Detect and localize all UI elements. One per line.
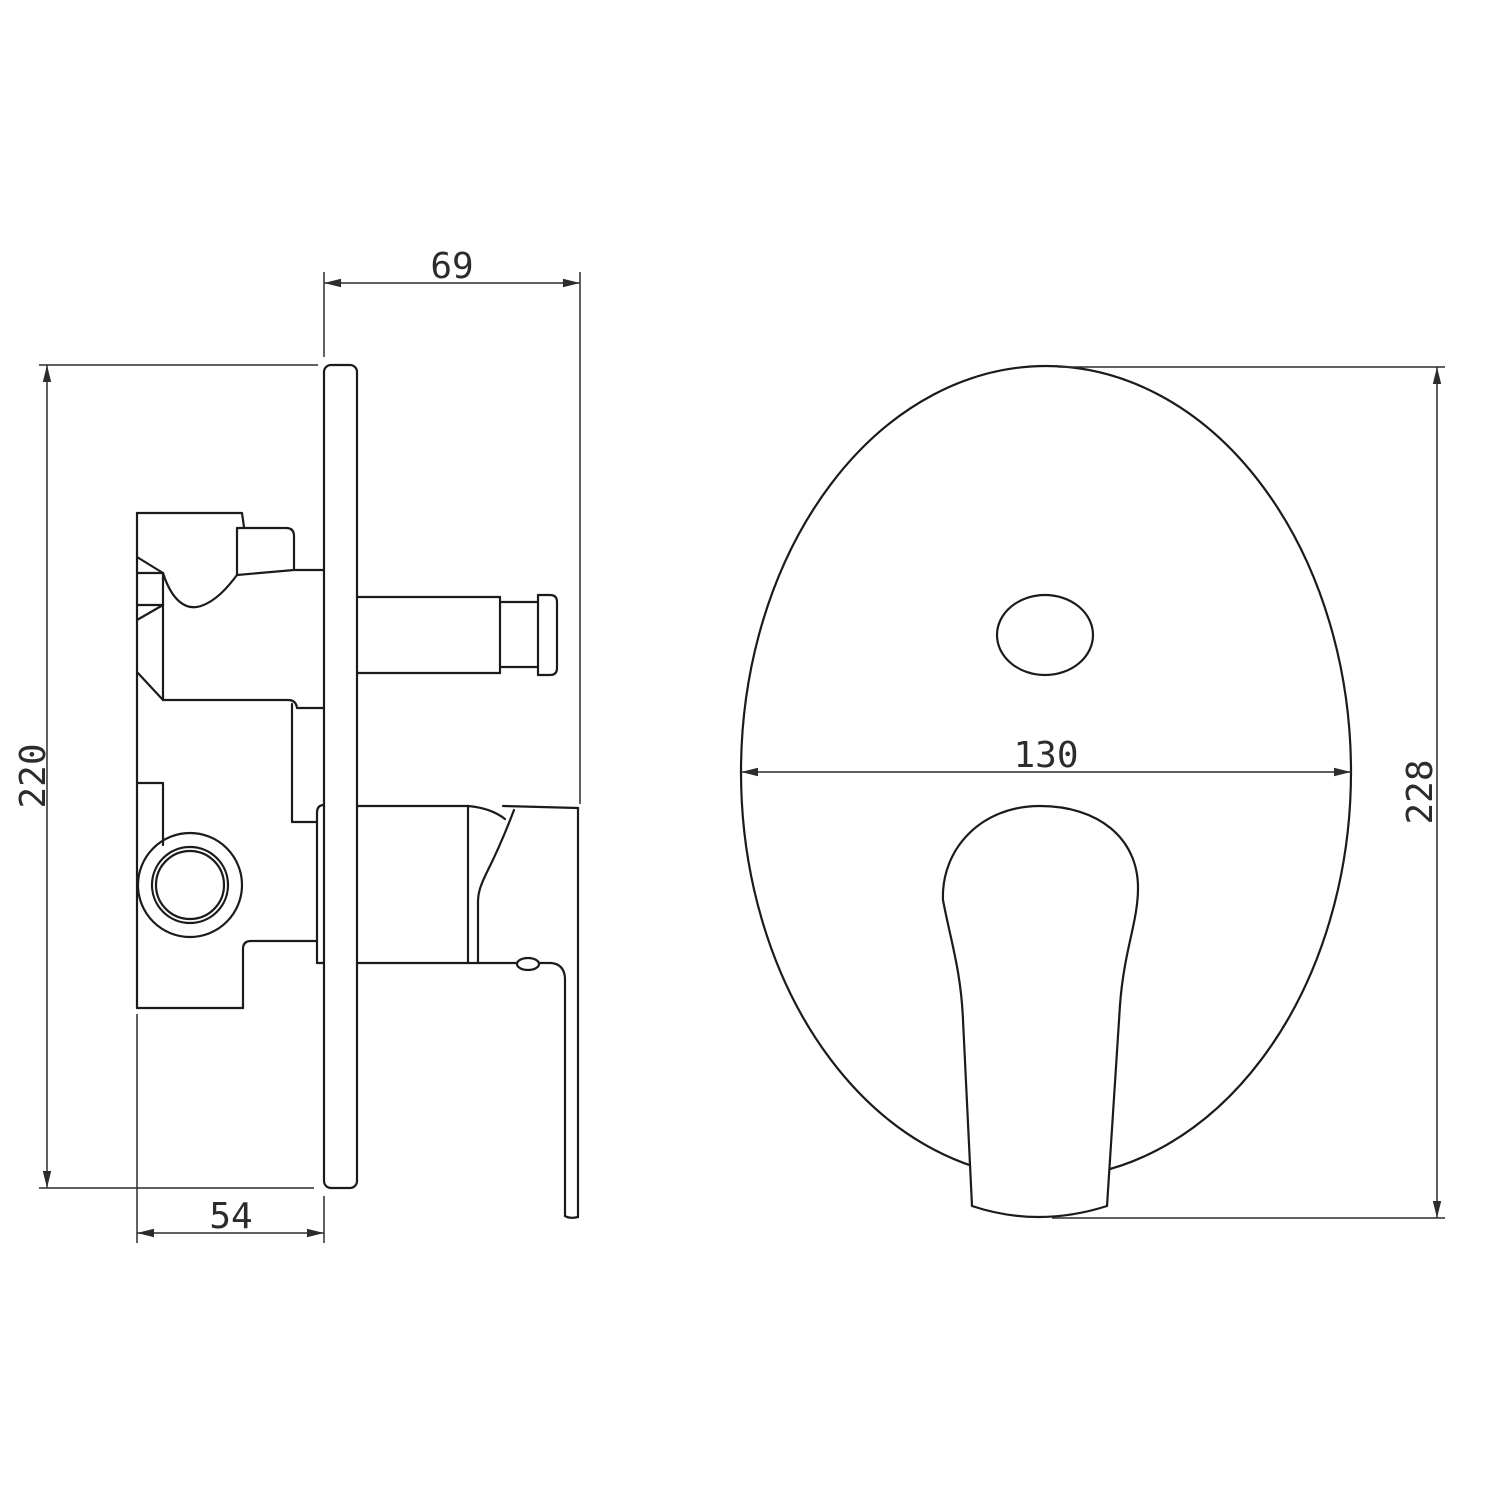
cartridge-saddle-curve [163, 573, 237, 607]
technical-drawing: 220 69 54 [0, 0, 1500, 1500]
valve-body [137, 513, 324, 1008]
body-detail-line [137, 672, 163, 700]
dimension-value: 130 [1013, 735, 1078, 776]
arrowhead-right-icon [563, 279, 580, 287]
drawing-sheet: 220 69 54 [0, 0, 1500, 1500]
dimension-value: 228 [1400, 759, 1441, 824]
body-detail-line [137, 605, 163, 620]
arrowhead-left-icon [137, 1229, 154, 1237]
arrowhead-down-icon [1433, 1201, 1441, 1218]
arrowhead-left-icon [741, 768, 758, 776]
dimension-220: 220 [13, 365, 318, 1188]
arrowhead-down-icon [43, 1171, 51, 1188]
cap-bottom-edge [237, 570, 324, 575]
arrowhead-up-icon [43, 365, 51, 382]
arrowhead-up-icon [1433, 367, 1441, 384]
arrowhead-right-icon [1334, 768, 1351, 776]
body-top-edge [137, 513, 244, 527]
handle-pivot-oval [517, 958, 539, 970]
body-detail-line [137, 557, 163, 573]
arrowhead-left-icon [324, 279, 341, 287]
dimension-54: 54 [137, 1014, 324, 1243]
body-lower-ledge [243, 941, 317, 1008]
inlet-port-outer-ring [138, 833, 242, 937]
lever-bottom-edge [565, 1216, 578, 1218]
dimension-130: 130 [741, 735, 1351, 776]
inlet-port-bore [156, 851, 224, 919]
dimension-value: 54 [209, 1196, 252, 1237]
dimension-value: 220 [13, 743, 54, 808]
diverter-button-hole [997, 595, 1093, 675]
handle-cap-shoulder [468, 806, 505, 819]
dimension-69: 69 [324, 246, 580, 804]
body-neck [292, 704, 317, 822]
arrowhead-right-icon [307, 1229, 324, 1237]
inlet-port-inner-ring [152, 847, 228, 923]
outlet-pipe [358, 595, 557, 675]
side-view: 220 69 54 [13, 246, 580, 1243]
handle-base-line-right [539, 963, 565, 1216]
cartridge-cap [237, 528, 294, 575]
lever-front-profile [478, 810, 514, 963]
wall-plate [324, 365, 357, 1188]
body-lower-step [137, 783, 163, 845]
handle-side-profile [357, 806, 578, 1218]
handle-lever-front [943, 806, 1138, 1217]
body-bottom-edge-upper [163, 700, 324, 708]
pipe-flange [538, 595, 557, 675]
front-view: 130 228 [741, 366, 1445, 1218]
lever-top-edge [503, 806, 578, 808]
dimension-value: 69 [430, 246, 473, 287]
